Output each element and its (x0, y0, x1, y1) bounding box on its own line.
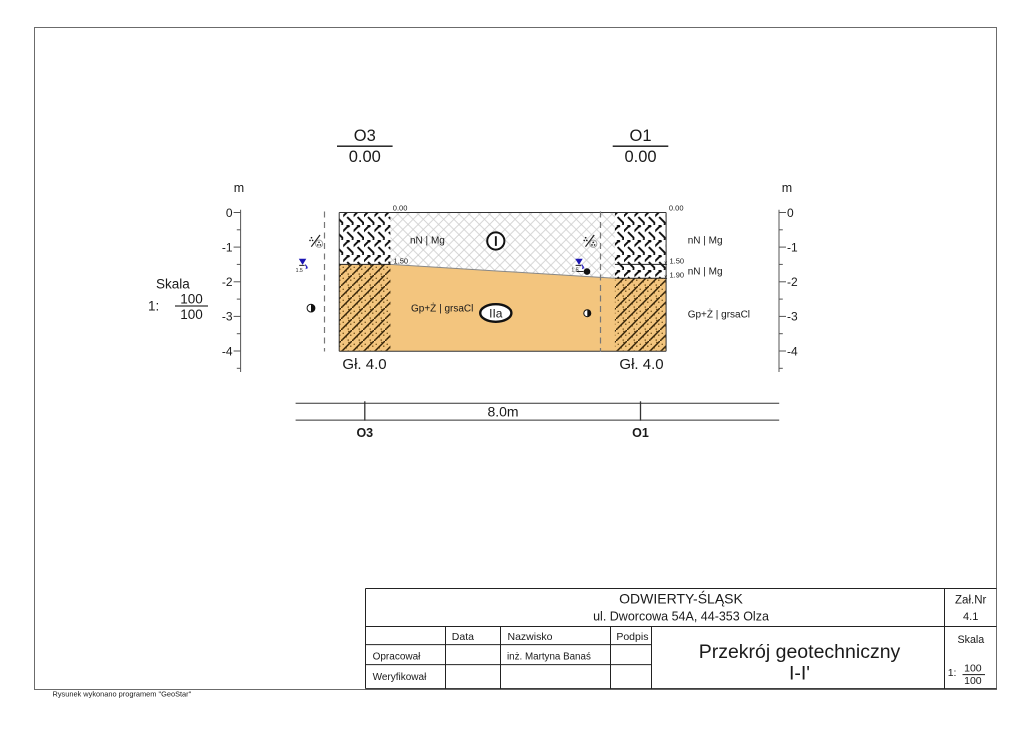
svg-text:Data: Data (452, 631, 474, 643)
svg-text:Gł. 4.0: Gł. 4.0 (619, 356, 663, 373)
svg-text:ODWIERTY-ŚLĄSK: ODWIERTY-ŚLĄSK (619, 590, 743, 607)
svg-text:0: 0 (226, 206, 233, 220)
svg-text:Rysunek wykonano programem "Ge: Rysunek wykonano programem "GeoStar" (53, 690, 192, 699)
svg-text:Nazwisko: Nazwisko (508, 631, 553, 643)
svg-text:-1: -1 (222, 240, 233, 254)
svg-text:Podpis: Podpis (616, 631, 648, 643)
svg-text:1.5: 1.5 (296, 268, 303, 274)
svg-text:Opracował: Opracował (373, 651, 422, 662)
svg-text:x: x (664, 261, 667, 267)
svg-text:0.00: 0.00 (624, 148, 656, 166)
svg-text:0.00: 0.00 (669, 204, 684, 213)
svg-text:IIa: IIa (489, 306, 503, 320)
svg-text:0.00: 0.00 (349, 148, 381, 166)
svg-text:ul. Dworcowa 54A, 44-353 Olza: ul. Dworcowa 54A, 44-353 Olza (593, 610, 769, 624)
svg-text:m: m (234, 181, 244, 195)
svg-text:-4: -4 (222, 344, 233, 358)
svg-text:100: 100 (964, 662, 982, 674)
svg-text:8.0m: 8.0m (487, 403, 518, 419)
svg-text:1:: 1: (948, 667, 957, 679)
svg-text:Gp+Ż | grsaCl: Gp+Ż | grsaCl (411, 302, 473, 315)
svg-text:-2: -2 (787, 275, 798, 289)
svg-text:nN | Mg: nN | Mg (410, 236, 445, 247)
svg-text:1.50: 1.50 (670, 257, 685, 266)
svg-text:nN | Mg: nN | Mg (688, 267, 723, 278)
svg-text:0: 0 (787, 206, 794, 220)
svg-text:-4: -4 (787, 344, 798, 358)
svg-text:O3: O3 (356, 426, 373, 440)
svg-text:Skala: Skala (156, 277, 190, 292)
svg-text:O3: O3 (354, 127, 376, 145)
svg-text:1.50: 1.50 (394, 257, 409, 266)
svg-text:Zał.Nr: Zał.Nr (955, 595, 986, 607)
svg-text:Weryfikował: Weryfikował (373, 672, 427, 683)
svg-text:100: 100 (180, 292, 203, 307)
svg-text:O1: O1 (629, 127, 651, 145)
svg-text:100: 100 (180, 307, 203, 322)
svg-text:O1: O1 (632, 426, 649, 440)
svg-text:-3: -3 (787, 310, 798, 324)
svg-text:m: m (782, 181, 792, 195)
svg-text:I-I': I-I' (789, 663, 810, 685)
svg-text:inż. Martyna Banaś: inż. Martyna Banaś (507, 651, 591, 662)
svg-text:x: x (664, 275, 667, 281)
svg-text:1.5: 1.5 (571, 267, 578, 273)
svg-text:Przekrój geotechniczny: Przekrój geotechniczny (699, 641, 901, 663)
svg-text:1.90: 1.90 (670, 271, 685, 280)
svg-text:-2: -2 (222, 275, 233, 289)
svg-text:Gł. 4.0: Gł. 4.0 (342, 356, 386, 373)
svg-text:100: 100 (964, 675, 982, 687)
svg-text:Gp+Ż | grsaCl: Gp+Ż | grsaCl (688, 308, 750, 321)
svg-text:Skala: Skala (958, 634, 985, 646)
svg-text:x: x (388, 261, 391, 267)
svg-text:nN | Mg: nN | Mg (688, 236, 723, 247)
svg-text:1:: 1: (148, 299, 159, 314)
svg-text:0.00: 0.00 (393, 204, 408, 213)
svg-text:4.1: 4.1 (963, 611, 978, 623)
svg-text:-1: -1 (787, 240, 798, 254)
svg-text:-3: -3 (222, 310, 233, 324)
